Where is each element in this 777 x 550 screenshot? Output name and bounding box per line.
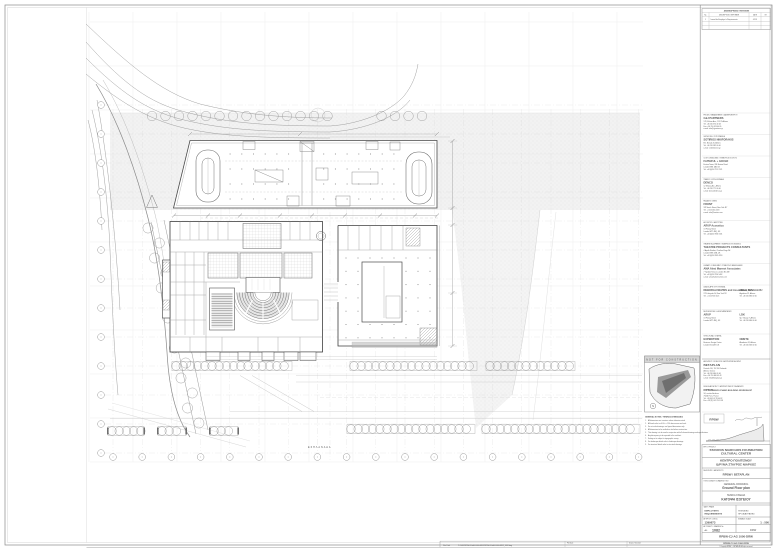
column-dot — [346, 271, 347, 272]
column-dot — [347, 184, 348, 185]
column-dot — [358, 297, 359, 298]
column-dot — [406, 284, 407, 285]
revision-cell: 1 — [705, 19, 706, 21]
note-number: 1. — [645, 420, 647, 422]
floor-plan: ΕΣΠΛΑΝΑΔΑ — [86, 12, 643, 462]
side-stage-right — [284, 253, 312, 278]
fly-tower — [243, 224, 281, 249]
note-text: Setting out is subject to topographic su… — [648, 437, 679, 440]
column-dot — [346, 311, 347, 312]
footer-bar: Plot Date Drawn / Checked File Path P:/1… — [87, 541, 772, 548]
note-text: All dimensions are in meters unless othe… — [648, 419, 686, 422]
grid-bubble-dot — [463, 457, 464, 458]
planter-post — [209, 428, 211, 435]
column-dot — [430, 297, 431, 298]
grid-bubble-dot — [101, 337, 102, 338]
drawing-no: 1082 — [712, 528, 720, 532]
note-text: For structural details refer to structur… — [648, 443, 683, 446]
note-text: For landscape details refer to landscape… — [648, 440, 684, 443]
consultant-address-line: London W1T 4BQ, UK — [704, 320, 722, 322]
column-dot — [230, 184, 231, 185]
consultant-address-line: e-mail: info@cjpartners.gr — [704, 127, 724, 130]
consultant-name: THEATRE PROJECTS CONSULTANTS — [704, 245, 751, 249]
consultant-role: MEP SERVICES / Η-Μ ΕΓΚΑΤΑΣΤΑΣΕΙΣ — [704, 310, 732, 313]
grid-bubbles-bottom — [110, 454, 642, 461]
column-dot — [382, 199, 383, 200]
planter-post — [143, 428, 145, 435]
note-number: 2. — [645, 423, 647, 425]
grid-bubble-dot — [434, 457, 435, 458]
scale-value: 1 : 500 — [760, 520, 769, 524]
architects-blocks: ARCHITECT OF RECORD / ΑΡΧΙΤΕΚΤΩΝ ΜΕΛΕΤΗΣ… — [702, 359, 771, 412]
consultant-address-line: London N1 0QH, UK — [704, 344, 720, 346]
column-dot — [346, 284, 347, 285]
column-dot — [276, 199, 277, 200]
grid-bubble-dot — [101, 192, 102, 193]
column-dot — [230, 154, 231, 155]
consultant-address-line: Tel: +30 210 680 00 00 — [740, 295, 757, 297]
column-dot — [370, 324, 371, 325]
grid-bubble-dot — [375, 457, 376, 458]
column-dot — [253, 184, 254, 185]
note-number: 7. — [645, 438, 647, 440]
column-dot — [382, 324, 383, 325]
column-dot — [323, 199, 324, 200]
plot-date-label: Plot Date — [567, 542, 573, 545]
note-number: 5. — [645, 432, 647, 434]
tree — [194, 418, 204, 428]
column-dot — [370, 258, 371, 259]
consultant-address-line: Tel: +1 212 925 1125 — [704, 295, 720, 297]
column-dot — [241, 199, 242, 200]
grid-bubble-dot — [101, 279, 102, 280]
column-dot — [418, 271, 419, 272]
note-number: 4. — [645, 429, 647, 431]
consultant-address-line: Tel: +30 210 680 00 00 — [740, 320, 757, 322]
column-dot — [230, 199, 231, 200]
column-dot — [288, 184, 289, 185]
column-dot — [358, 311, 359, 312]
project-title-gr-2: ΙΔΡΥΜΑ ΣΤΑΥΡΟΣ ΝΙΑΡΧΟΣ — [716, 463, 756, 467]
logo-row: RPBW — [704, 414, 762, 423]
column-dot — [370, 154, 371, 155]
column-dot — [406, 324, 407, 325]
drawing-sheet: ΕΣΠΛΑΝΑΔΑ NOT FOR CONSTRUCTION N GENERAL… — [0, 0, 777, 550]
consultant-address-line: e-mail: ama@aleximarmot.com — [704, 275, 728, 278]
tree — [183, 403, 193, 413]
sheet-size: A0 — [705, 529, 708, 532]
column-dot — [265, 154, 266, 155]
column-dot — [418, 324, 419, 325]
column-dot — [370, 199, 371, 200]
column-dot — [430, 311, 431, 312]
consultant-address-line: Tel: +44 (0)20 7482 4224 — [704, 255, 723, 257]
column-dot — [358, 284, 359, 285]
column-dot — [418, 297, 419, 298]
consultant-role: SURVEYING / ΤΟΠΟΓΡΑΦΙΚΑ — [704, 135, 726, 138]
column-dot — [346, 324, 347, 325]
column-dot — [393, 154, 394, 155]
consultant-role: LANDSCAPE / ΦΥΤΟΤΕΧΝΙΚΑ — [704, 286, 727, 289]
column-dot — [418, 311, 419, 312]
consultant-role: ACOUSTICS / ΑΚΟΥΣΤΙΚΗ — [704, 221, 723, 224]
project-block: ΕΡΓΟ / PROJECT STAVROS NIARCHOS FOUNDATI… — [704, 446, 770, 538]
parking-garage — [174, 141, 438, 209]
column-dot — [394, 324, 395, 325]
side-stage-left — [208, 253, 238, 278]
note-number: 6. — [645, 435, 647, 437]
consultant-name: SOTIRIOS NIKIFORAKIS — [704, 138, 734, 142]
architect-address-line: Fax: +33 (0)1 42 78 01 98 — [704, 400, 724, 402]
column-dot — [323, 169, 324, 170]
column-dot — [323, 154, 324, 155]
consultant-role: COST CONSULTANT / ΣΥΜΒΟΥΛΟΣ ΚΟΣΤΟΥΣ — [704, 157, 737, 160]
column-dot — [265, 184, 266, 185]
grid-bubble-dot — [171, 457, 172, 458]
column-dot — [382, 337, 383, 338]
consultants-list: PROJECT MANAGEMENT / ΔΙΑΧΕΙΡΙΣΗ ΕΡΓΟΥC&J… — [702, 113, 771, 346]
planter — [108, 427, 144, 436]
column-dot — [346, 297, 347, 298]
column-dot — [394, 337, 395, 338]
library-block — [338, 226, 440, 348]
entry-stubs — [206, 352, 316, 361]
column-dot — [253, 154, 254, 155]
column-dot — [418, 284, 419, 285]
canopy-band — [352, 342, 437, 348]
column-dot — [230, 169, 231, 170]
column-dot — [382, 258, 383, 259]
consultant-address-line: Tel: +44 (0)20 7636 1531 — [704, 233, 723, 235]
column-dot — [406, 258, 407, 259]
grid-bubble-dot — [200, 457, 201, 458]
architect-name: RENZO PIANO BUILDING WORKSHOP — [712, 389, 753, 392]
column-dot — [430, 284, 431, 285]
consultant-name: LDK — [740, 313, 745, 317]
column-dot — [346, 258, 347, 259]
grid-bubble-dot — [101, 366, 102, 367]
planter-post — [237, 428, 239, 435]
esplanade-label: ΕΣΠΛΑΝΑΔΑ — [308, 446, 332, 449]
note-text: This drawing is to be read in conjunctio… — [648, 431, 709, 434]
note-number: 8. — [645, 441, 647, 443]
tree — [150, 253, 160, 263]
column-dot — [265, 169, 266, 170]
revision-col-header: No. — [704, 15, 707, 17]
architects-label: ΜΕΛΕΤΗΤΕΣ / ARCHITECTS — [704, 469, 724, 472]
doc-code: RPBW-CJ-AG 1000-DRW — [719, 535, 753, 539]
phase-gr-1: ΤΕΧΝΙΚΕΣ — [738, 510, 749, 512]
project-title-en-2: CULTURAL CENTER — [721, 452, 752, 456]
revision-col-header: DATE — [753, 14, 757, 17]
revision-col-header: BY — [765, 15, 767, 17]
job-no: 1399673 — [705, 520, 716, 524]
grid-bubble-dot — [288, 457, 289, 458]
column-dot — [358, 154, 359, 155]
stamp-column: NOT FOR CONSTRUCTION N GENERAL NOTES / Γ… — [645, 356, 709, 446]
column-dot — [418, 337, 419, 338]
column-dot — [347, 154, 348, 155]
column-dot — [370, 169, 371, 170]
column-dot — [253, 199, 254, 200]
column-dot — [335, 184, 336, 185]
column-dot — [346, 337, 347, 338]
grid-bubble-dot — [101, 250, 102, 251]
drawn-label: Drawn / Checked — [629, 542, 641, 545]
note-text: Do not scale drawings; use figured dimen… — [648, 425, 685, 428]
column-dot — [358, 271, 359, 272]
consultant-address-line: Tel: +44 (0)20 7121 2121 — [704, 169, 723, 171]
consultant-name: NELLI PANGALOU — [740, 288, 763, 292]
title-gr: ΚΑΤΟΨΗ ΙΣΟΓΕΙΟΥ — [721, 498, 751, 502]
column-dot — [253, 169, 254, 170]
column-dot — [288, 199, 289, 200]
column-dot — [430, 258, 431, 259]
column-dot — [370, 337, 371, 338]
grid-bubble-dot — [346, 457, 347, 458]
column-dot — [276, 154, 277, 155]
notes-title: GENERAL NOTES / ΓΕΝΙΚΕΣ ΣΗΜΕΙΩΣΕΙΣ — [645, 416, 684, 419]
column-dot — [358, 337, 359, 338]
note-text: All dimensions to be verified on site be… — [648, 428, 688, 431]
column-dot — [393, 169, 394, 170]
consultant-role: THEATRE EQUIPMENT / ΘΕΑΤΡΙΚΟΣ ΕΞΟΠΛΙΣΜΟΣ — [704, 243, 741, 246]
tree — [187, 388, 197, 398]
column-dot — [358, 324, 359, 325]
phase-en-1: EMPLOYER'S — [705, 510, 720, 512]
doc-code-footer: RPBW-CJ-AG 1000-DRW — [723, 542, 749, 545]
column-dot — [430, 271, 431, 272]
general-notes: GENERAL NOTES / ΓΕΝΙΚΕΣ ΣΗΜΕΙΩΣΕΙΣ1.All … — [645, 416, 709, 446]
column-dot — [406, 271, 407, 272]
column-dot — [276, 184, 277, 185]
consultant-address-line: e-mail: denco@denco.gr — [704, 189, 723, 192]
title-block: ΑΝΑΘΕΩΡΗΣΕΙΣ / REVISIONSNo.DESCRIPTION /… — [702, 9, 771, 541]
column-dot — [335, 169, 336, 170]
column-dot — [418, 258, 419, 259]
column-dot — [335, 199, 336, 200]
phase-en-2: REQUIREMENTS — [705, 513, 723, 515]
note-number: 3. — [645, 426, 647, 428]
file-path-label: File Path — [443, 544, 450, 547]
grid-bubble-dot — [551, 457, 552, 458]
consultant-name: AMA Alexi Marmot Associates — [704, 267, 742, 271]
grid-bubble-dot — [142, 457, 143, 458]
scale-label: ΚΛΙΜΑΚΑ / SCALE — [738, 518, 751, 521]
column-dot — [347, 199, 348, 200]
grid-bubble-dot — [259, 457, 260, 458]
consultant-name: FRONT — [704, 202, 713, 206]
grid-bubble-dot — [101, 308, 102, 309]
grid-bubble-dot — [101, 163, 102, 164]
column-dot — [288, 169, 289, 170]
grid-bubble-dot — [101, 221, 102, 222]
column-dot — [393, 199, 394, 200]
grid-bubble-dot — [101, 134, 102, 135]
main-stage — [240, 253, 282, 278]
title-en: Ground Floor plan — [722, 486, 750, 490]
consultant-name: C&J PARTNERS — [704, 116, 724, 120]
grid-bubble-dot — [580, 457, 581, 458]
library-core-room — [362, 262, 402, 322]
column-dot — [241, 184, 242, 185]
signature-mark — [735, 417, 762, 421]
consultant-name: DENCO — [704, 181, 713, 185]
not-for-construction-stamp: NOT FOR CONSTRUCTION — [646, 360, 697, 362]
tree — [154, 238, 164, 248]
revision-cell: Issued for Employer's Requirements — [711, 18, 738, 21]
grid-bubble-dot — [101, 105, 102, 106]
consultant-name: OMETE — [740, 337, 749, 341]
file-path: P:/1082/RPBW-CJ-AG-1000-DRW/RPBW-CJ-AG-1… — [458, 544, 512, 547]
note-number: 9. — [645, 444, 647, 446]
grid-bubble-dot — [492, 457, 493, 458]
rehearsal-hall — [210, 288, 235, 330]
column-dot — [241, 154, 242, 155]
tree — [181, 358, 191, 368]
planter-post — [157, 428, 159, 435]
architects-row: RPBW / BETAPLAN — [723, 473, 750, 477]
column-dot — [382, 154, 383, 155]
sheet-canvas: { "sheet": { "stamp_text": "NOT FOR CONS… — [0, 0, 777, 550]
tree — [176, 373, 186, 383]
column-dot — [276, 169, 277, 170]
consultant-address-line: Tel: +30 210 363 00 00 — [740, 344, 757, 346]
column-dot — [406, 337, 407, 338]
column-dot — [382, 169, 383, 170]
tree — [143, 223, 153, 233]
column-dot — [382, 184, 383, 185]
consultant-address-line: e-mail: snik@otenet.gr — [704, 146, 721, 149]
column-dot — [265, 199, 266, 200]
consultant-name: ARUP Acoustics — [704, 224, 725, 228]
consultant-role: STRUCTURAL / ΣΤΑΤΙΚΑ — [704, 335, 723, 338]
phase-label: ΦΑΣΗ / PHASE — [704, 506, 715, 509]
consultant-role: TRAFFIC / ΚΥΚΛΟΦΟΡΙΑΚΑ — [704, 178, 725, 181]
column-dot — [406, 297, 407, 298]
column-dot — [323, 184, 324, 185]
column-dot — [347, 169, 348, 170]
consultant-name: FAITHFUL + GOULD — [704, 159, 729, 163]
grid-bubble-dot — [405, 457, 406, 458]
column-dot — [394, 258, 395, 259]
consultant-address-line: e-mail: info@frontinc.com — [704, 211, 724, 214]
consultant-name: EXPEDITION — [704, 337, 720, 341]
column-dot — [358, 258, 359, 259]
esplanade-planters — [107, 362, 640, 436]
column-dot — [241, 169, 242, 170]
column-dot — [335, 154, 336, 155]
revision-table: ΑΝΑΘΕΩΡΗΣΕΙΣ / REVISIONSNo.DESCRIPTION /… — [702, 9, 771, 30]
rpbw-logo: RPBW — [709, 418, 718, 422]
grid-bubble-dot — [638, 457, 639, 458]
architect-address-line: e-mail: info@betaplan.gr — [704, 377, 723, 380]
column-dot — [288, 154, 289, 155]
consultant-name: ARUP — [704, 313, 712, 317]
opera-block — [163, 222, 323, 361]
phase-gr-2: ΠΡΟΔΙΑΓΡΑΦΕΣ — [738, 512, 755, 515]
column-dot — [406, 311, 407, 312]
north-label: N — [652, 404, 654, 408]
type-code: DRW — [750, 528, 757, 532]
column-dot — [393, 184, 394, 185]
grid-bubble-dot — [101, 424, 102, 425]
grid-bubble-dot — [317, 457, 318, 458]
grid-bubble-dot — [609, 457, 610, 458]
grid-bubble-dot — [101, 395, 102, 396]
revision-cell: 02.13 — [753, 19, 757, 21]
grid-bubble-dot — [521, 457, 522, 458]
consultant-role: PROJECT MANAGEMENT / ΔΙΑΧΕΙΡΙΣΗ ΕΡΓΟΥ — [704, 114, 738, 117]
consultant-role: FACADES / ΟΨΕΙΣ — [704, 200, 717, 203]
grid-bubble-dot — [101, 453, 102, 454]
planter-post — [185, 428, 187, 435]
planter-post — [107, 428, 109, 435]
grid-bubble-dot — [229, 457, 230, 458]
note-text: Any discrepancy to be reported to the ar… — [648, 434, 682, 437]
column-dot — [358, 169, 359, 170]
architect-name: BETAPLAN — [704, 363, 721, 367]
consultant-role: LIBRARY CONSULTANT / ΣΥΜΒΟΥΛΟΣ ΒΙΒΛΙΟΘΗΚ… — [704, 264, 743, 267]
grid-bubble-dot — [113, 457, 114, 458]
revision-title: ΑΝΑΘΕΩΡΗΣΕΙΣ / REVISIONS — [724, 10, 750, 13]
column-dot — [358, 199, 359, 200]
column-dot — [430, 324, 431, 325]
note-text: All levels refer to ±0.00 = +1.50 above … — [648, 422, 687, 425]
revision-col-header: DESCRIPTION / ΠΕΡΙΓΡΑΦΗ — [719, 14, 739, 17]
entrance-steps — [324, 284, 338, 300]
